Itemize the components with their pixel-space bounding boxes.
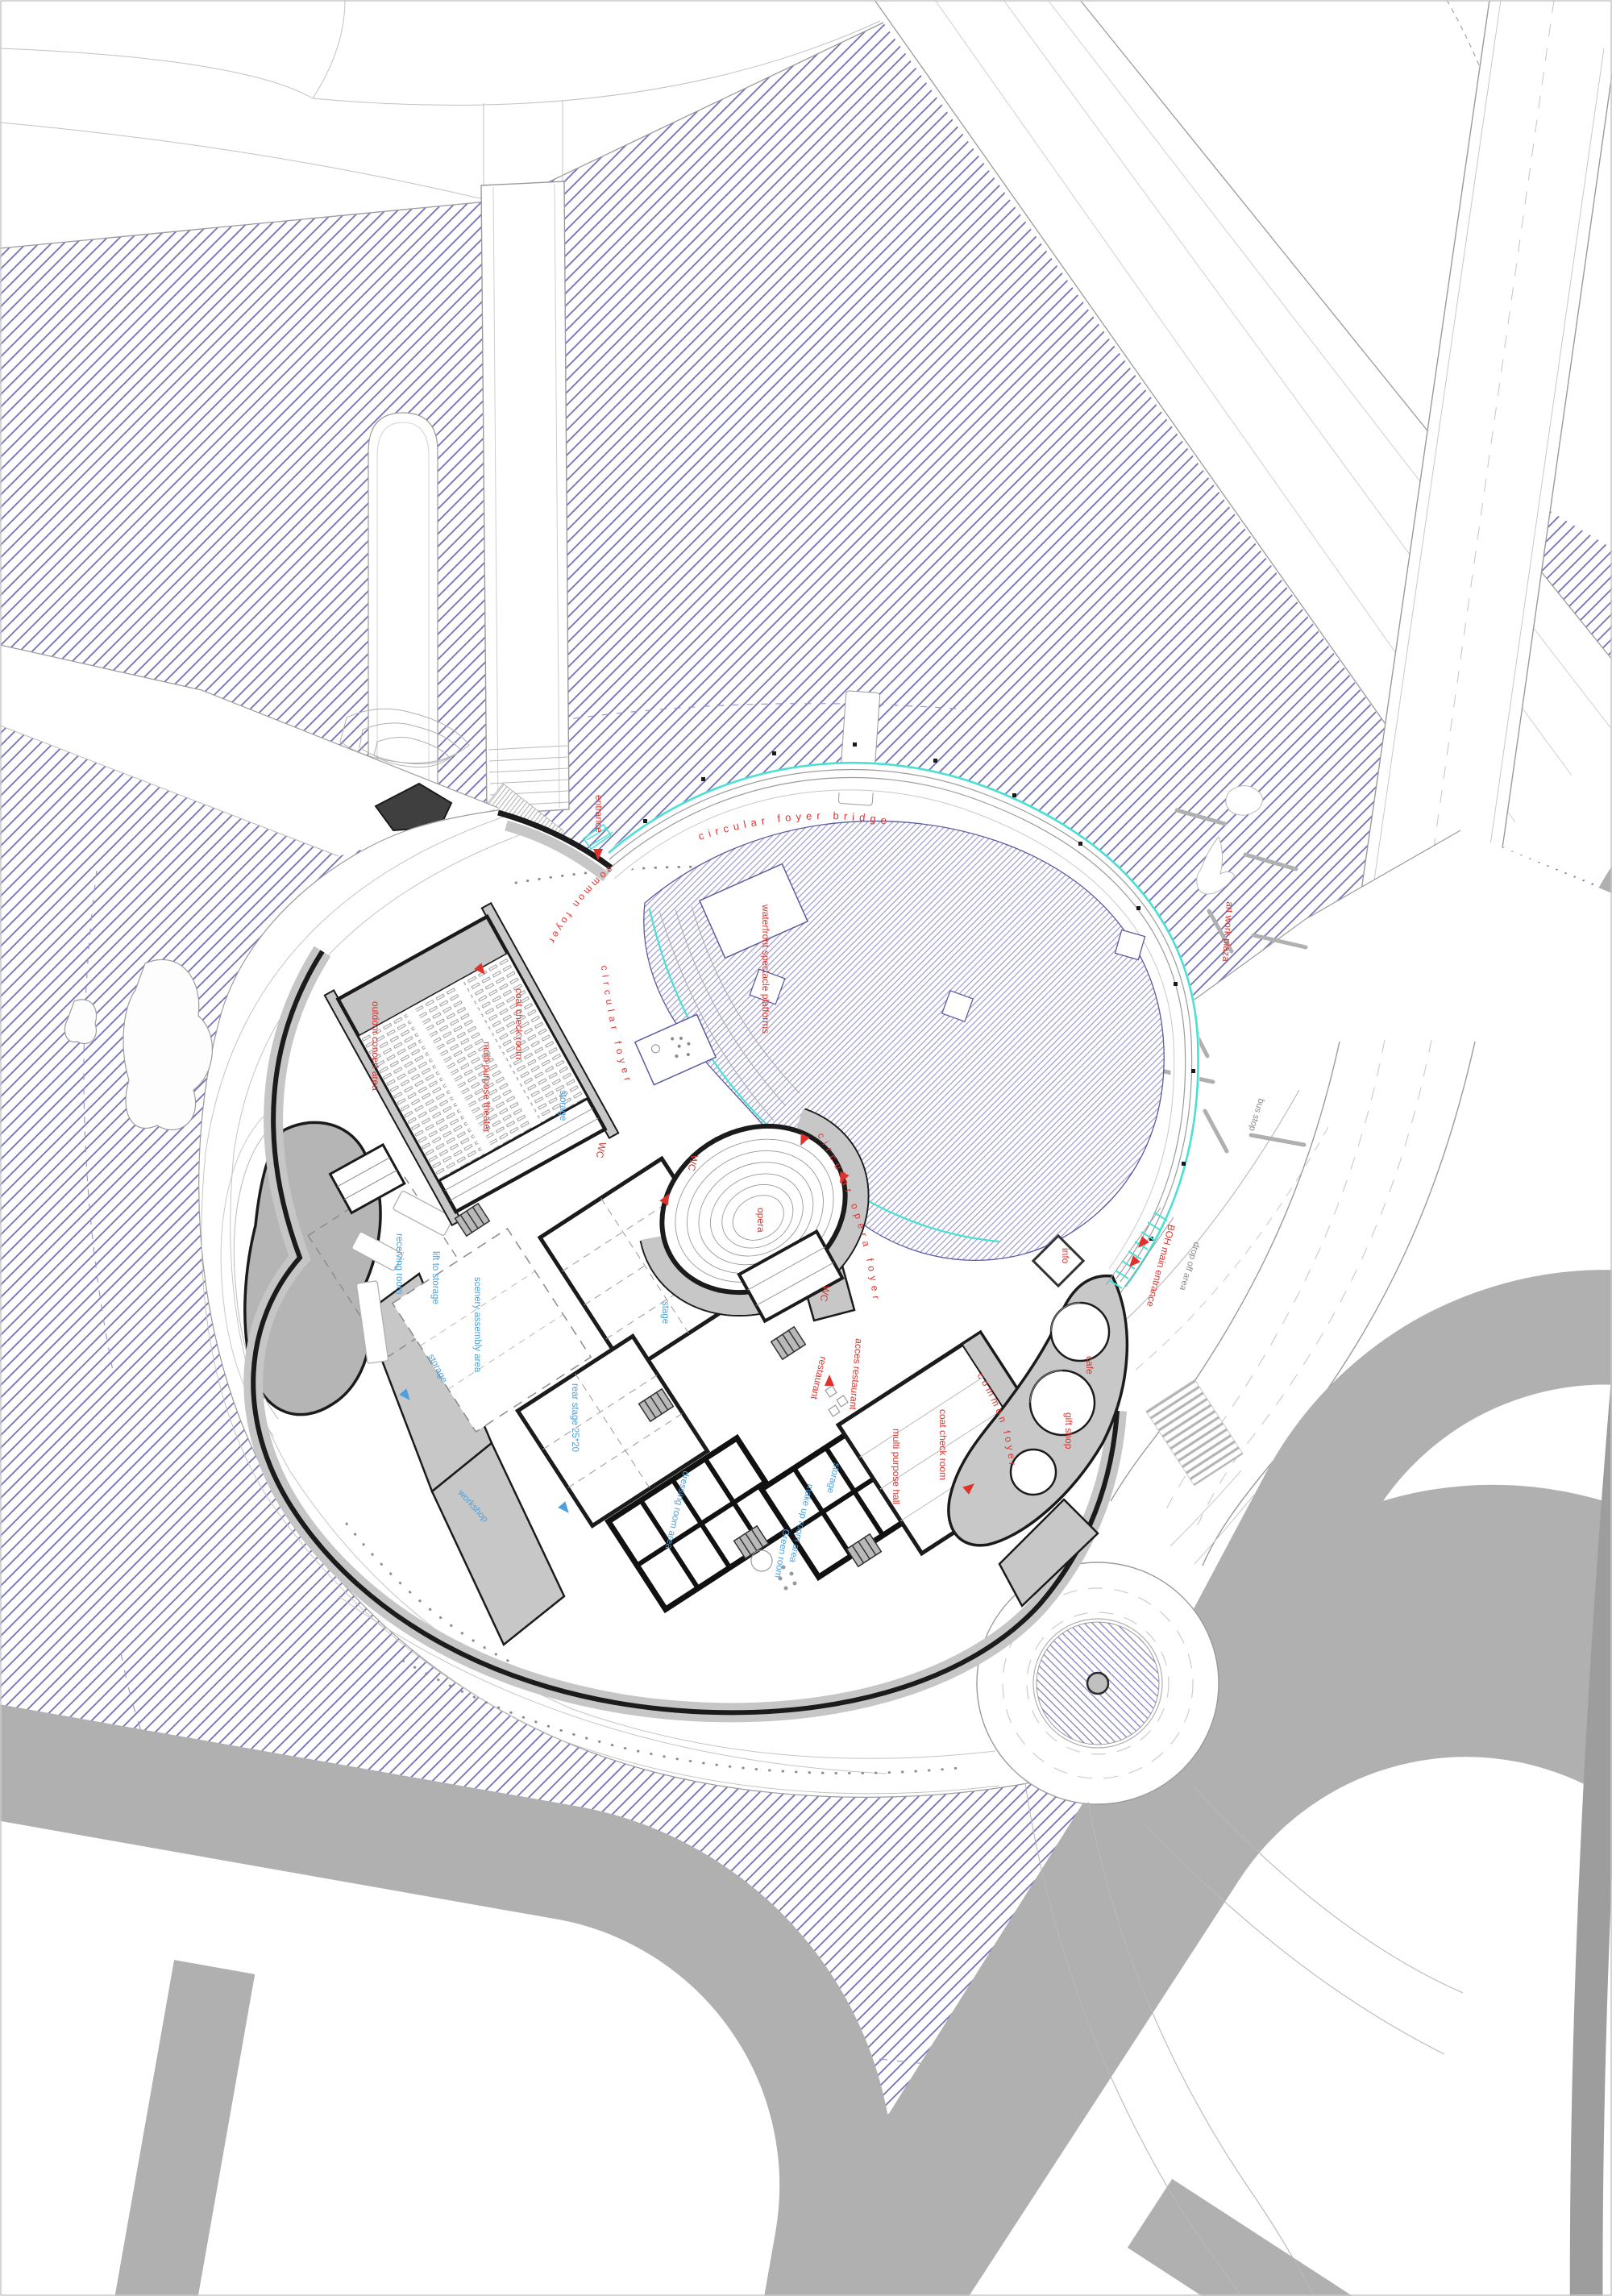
- label-multi-purpose-theater: multi purpose theater: [481, 1042, 492, 1133]
- label-outdoor-concert-area: outdoor concert area: [370, 1001, 381, 1091]
- label-gift-shop: gift shop: [1063, 1412, 1074, 1450]
- label-coat-check-e: coat check room: [937, 1409, 949, 1480]
- label-entrance: entrance: [593, 795, 604, 833]
- label-waterfront-platforms: waterfront spectacle platforms: [760, 904, 771, 1034]
- label-scenery-assembly: scenery assembly area: [472, 1277, 482, 1373]
- label-receiving-room: receiving room: [394, 1233, 404, 1294]
- site-plan-drawing: entrance circular foyer bridge common fo…: [0, 0, 1612, 2296]
- label-lift-to-storage: lift to storage: [430, 1251, 440, 1304]
- label-rear-stage: rear stage 25*20: [570, 1383, 580, 1452]
- west-dock-slip: [368, 413, 438, 806]
- site-plan-sheet: entrance circular foyer bridge common fo…: [0, 0, 1612, 2296]
- label-coat-check-w: coat check room: [513, 988, 525, 1059]
- label-info: info: [1060, 1248, 1071, 1264]
- label-storage-n: storage: [558, 1090, 567, 1121]
- label-opera: opera: [755, 1208, 767, 1233]
- label-cafe: cafe: [1084, 1356, 1095, 1375]
- pier: [481, 181, 569, 854]
- label-stage: stage: [660, 1301, 670, 1324]
- roundabout-center-monument: [1087, 1673, 1108, 1694]
- label-multi-purpose-hall: multi purpose hall: [891, 1429, 902, 1504]
